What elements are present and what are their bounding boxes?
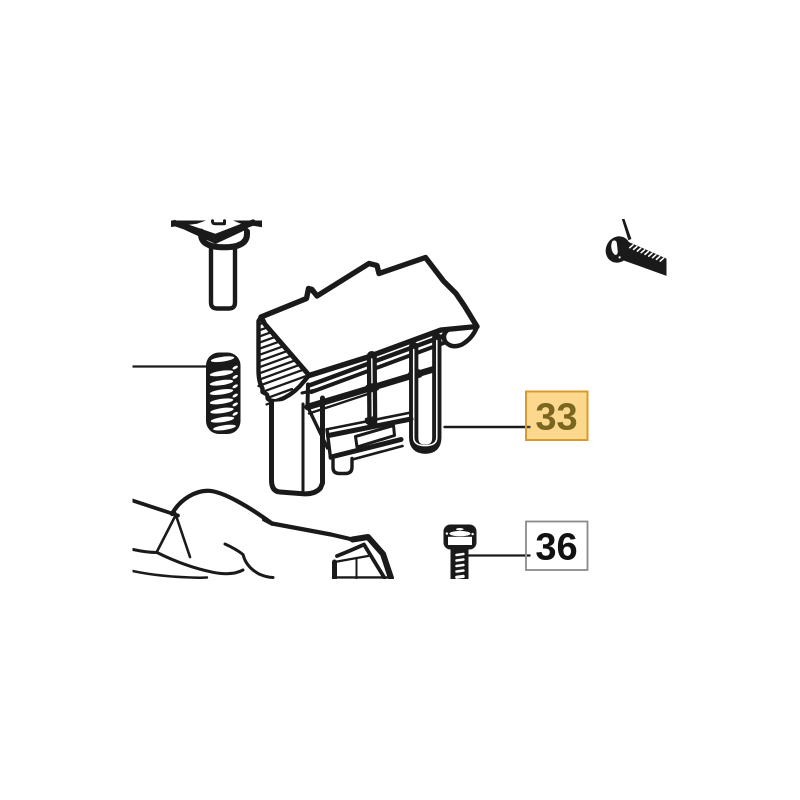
svg-text:33: 33 [535, 397, 577, 439]
svg-text:36: 36 [535, 527, 577, 569]
